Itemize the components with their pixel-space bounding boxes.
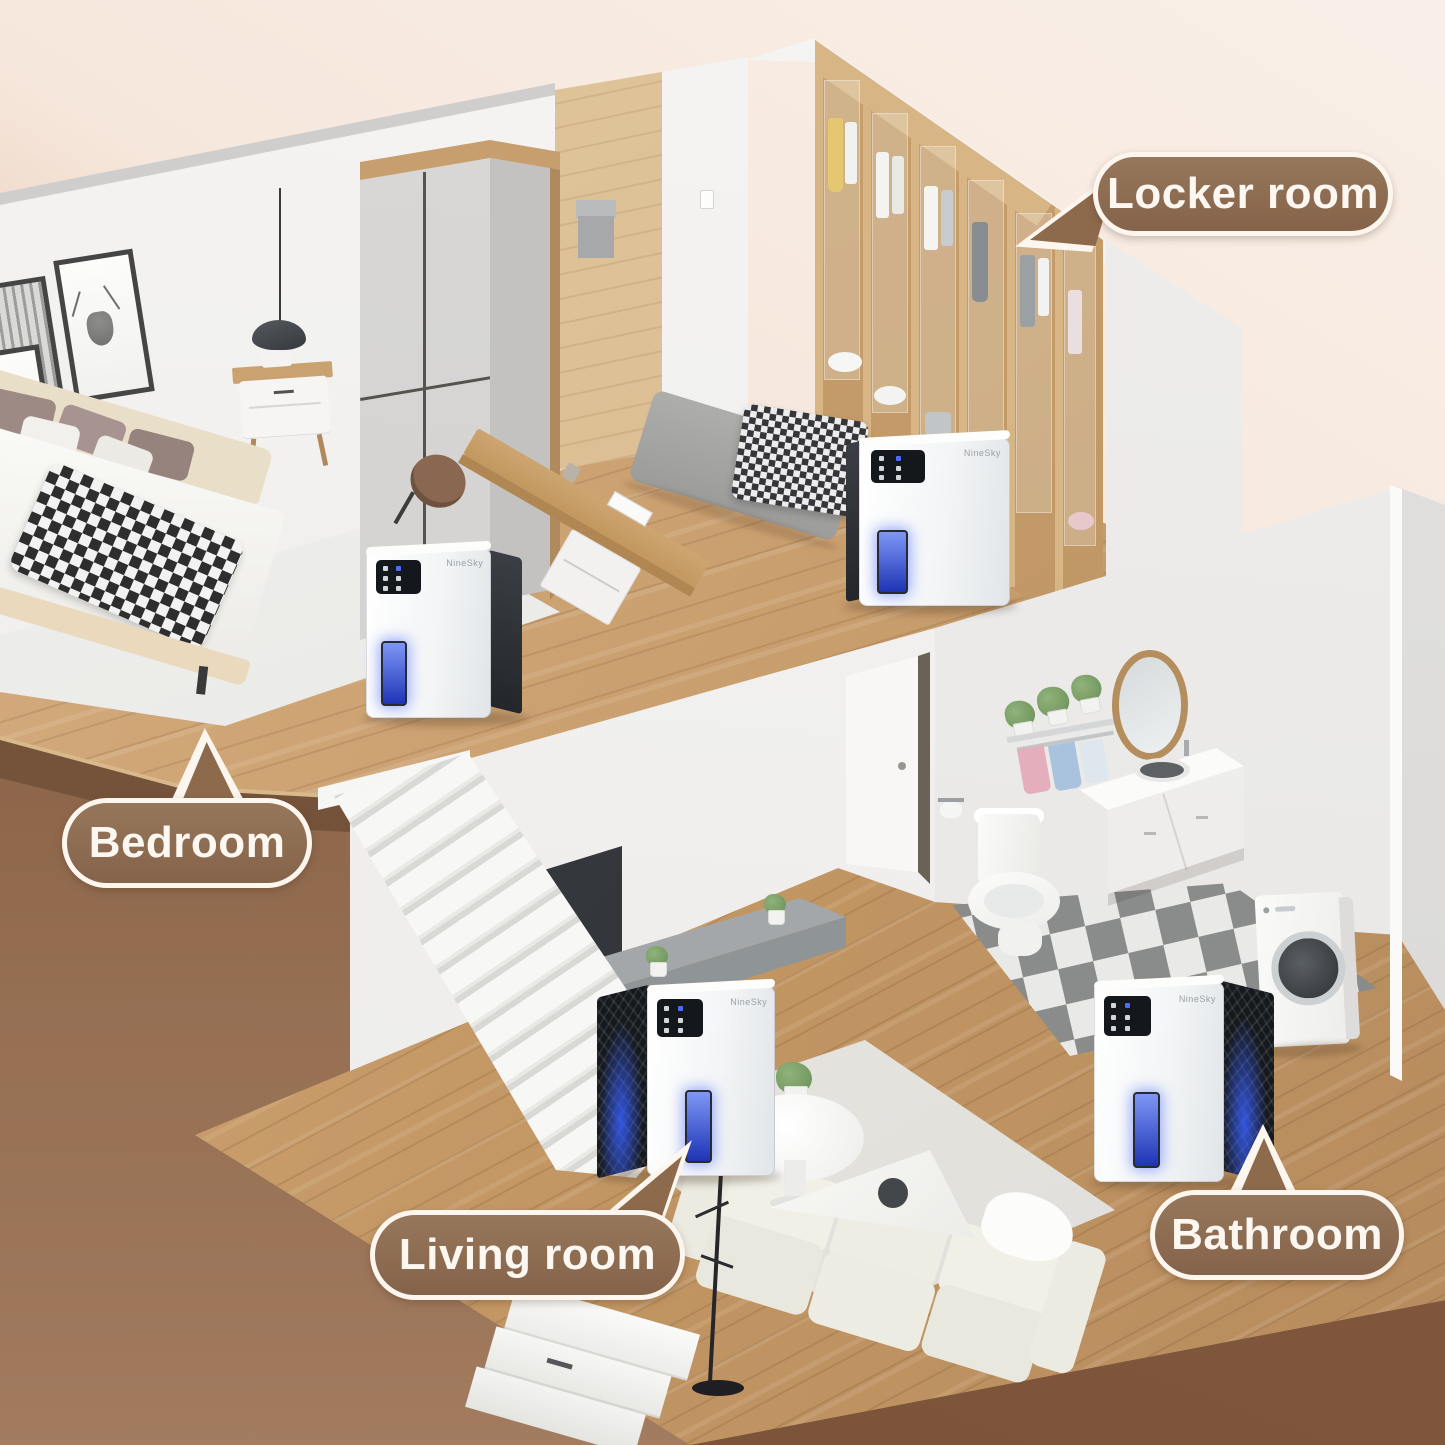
brand-label: NineSky: [1179, 994, 1216, 1004]
console-plant-pot: [650, 962, 667, 977]
door-handle: [898, 762, 906, 770]
hanging-coat-gray: [972, 222, 988, 302]
control-button: [879, 466, 884, 471]
control-button: [1111, 1026, 1116, 1031]
cabinet-handle: [1144, 832, 1156, 835]
bedroom-callout: Bedroom: [62, 798, 312, 888]
control-button: [664, 1028, 669, 1033]
locker-room-callout: Locker room: [1093, 152, 1393, 236]
nightstand-leg: [317, 434, 329, 466]
hanging-shirt-white: [845, 122, 857, 184]
control-button: [664, 1006, 669, 1011]
water-tank-window: [381, 641, 407, 706]
brand-label: NineSky: [446, 558, 483, 568]
bathroom-callout: Bathroom: [1150, 1190, 1404, 1280]
bed-leg: [196, 666, 208, 695]
brand-label: NineSky: [730, 997, 767, 1007]
shelf-pillow: [874, 386, 906, 405]
towel-blue: [1048, 742, 1083, 792]
hanging-shirt-white: [892, 156, 904, 214]
control-button: [896, 475, 901, 480]
cabinet-handle: [1196, 816, 1208, 819]
table-tray: [878, 1178, 908, 1208]
brand-label: NineSky: [964, 448, 1001, 458]
hanging-shirt-white: [924, 186, 938, 250]
toilet-base: [998, 922, 1042, 956]
unit-front-panel: NineSky: [647, 986, 775, 1176]
unit-front-panel: NineSky: [366, 548, 491, 718]
washer-panel: [1275, 906, 1295, 912]
toilet-seat: [984, 884, 1044, 918]
control-button: [396, 586, 401, 591]
plant-pot: [1047, 708, 1069, 726]
water-tank-window: [685, 1090, 712, 1162]
hanging-jacket-yellow: [828, 118, 843, 192]
dehumidifier-bathroom: NineSky: [1094, 982, 1274, 1182]
unit-side-panel: [488, 550, 522, 715]
control-button: [383, 566, 388, 571]
living-room-callout-text: Living room: [399, 1230, 656, 1280]
hanging-shirt-white: [876, 152, 889, 218]
unit-control-panel: [376, 560, 421, 594]
unit-front-panel: NineSky: [1094, 982, 1224, 1182]
hanging-shirt-white: [1038, 258, 1049, 316]
unit-control-panel: [871, 450, 925, 484]
water-tank-window: [877, 530, 908, 594]
faucet: [1184, 740, 1189, 756]
unit-front-panel: NineSky: [859, 438, 1010, 606]
control-button: [1111, 1003, 1116, 1008]
control-button: [1125, 1026, 1130, 1031]
antler-art: [72, 291, 81, 317]
control-button: [896, 456, 901, 461]
toilet-paper-roll: [940, 802, 962, 818]
towel-pink: [1017, 745, 1052, 795]
control-button: [664, 1018, 669, 1023]
control-button: [1125, 1015, 1130, 1020]
living-room-callout: Living room: [370, 1210, 685, 1300]
control-button: [678, 1028, 683, 1033]
hanging-shirt-gray: [941, 190, 953, 246]
pendant-lamp-cord: [279, 188, 281, 324]
hanging-garment-pink: [1068, 290, 1082, 354]
antler-art: [103, 285, 120, 309]
shelf-pillow: [828, 352, 862, 372]
dehumidifier-locker-room: NineSky: [846, 438, 1010, 606]
dehumidifier-bedroom: NineSky: [366, 548, 522, 718]
hallway-stool: [578, 216, 614, 258]
control-button: [1125, 1003, 1130, 1008]
control-button: [396, 566, 401, 571]
deer-art: [85, 310, 116, 348]
nightstand-decor: [261, 352, 292, 368]
light-switch: [700, 190, 714, 209]
towel-white: [1079, 739, 1110, 785]
control-button: [383, 576, 388, 581]
plant-pot: [1079, 697, 1101, 715]
unit-side-panel-lattice: [597, 984, 650, 1178]
unit-control-panel: [657, 999, 703, 1037]
control-button: [1111, 1015, 1116, 1020]
control-button: [396, 576, 401, 581]
wardrobe-frame: [1055, 206, 1063, 620]
sink-basin: [1140, 762, 1184, 778]
control-button: [678, 1006, 683, 1011]
control-button: [383, 586, 388, 591]
control-button: [879, 475, 884, 480]
control-button: [896, 466, 901, 471]
control-button: [678, 1018, 683, 1023]
bedroom-callout-text: Bedroom: [89, 818, 286, 868]
unit-control-panel: [1104, 996, 1151, 1036]
isometric-house-scene: NineSky NineSky: [0, 0, 1445, 1445]
bathroom-mirror: [1112, 650, 1188, 760]
shelf-item-pink: [1068, 512, 1094, 530]
water-tank-window: [1133, 1092, 1160, 1168]
locker-room-callout-text: Locker room: [1107, 169, 1379, 219]
console-plant-pot: [768, 910, 785, 925]
wardrobe-frame: [815, 40, 823, 454]
hanging-coat-gray: [1020, 255, 1035, 327]
bathroom-callout-text: Bathroom: [1171, 1210, 1383, 1260]
control-button: [879, 456, 884, 461]
